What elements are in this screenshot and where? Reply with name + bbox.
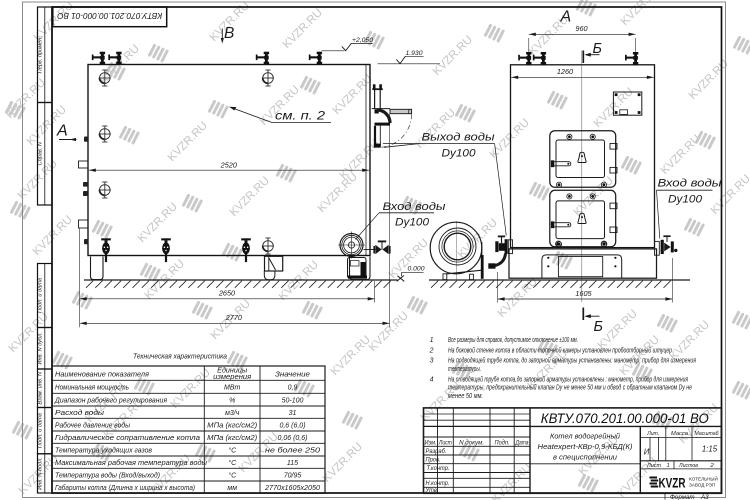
svg-text:не более 250: не более 250 <box>265 447 320 455</box>
svg-text:Расход воды: Расход воды <box>55 409 105 417</box>
svg-text:Б: Б <box>594 319 603 335</box>
svg-text:%: % <box>229 398 235 405</box>
svg-text:в специсполнении: в специсполнении <box>553 453 618 462</box>
svg-text:Вход воды: Вход воды <box>383 201 446 213</box>
svg-text:Разраб.: Разраб. <box>426 449 447 455</box>
svg-text:4: 4 <box>430 376 434 383</box>
svg-text:А: А <box>560 9 572 26</box>
svg-text:Масштаб: Масштаб <box>695 431 720 437</box>
svg-text:1:15: 1:15 <box>702 445 718 454</box>
svg-text:Значение: Значение <box>275 371 310 378</box>
svg-text:Номинальная мощность: Номинальная мощность <box>55 385 129 392</box>
svg-text:м3/ч: м3/ч <box>225 410 240 417</box>
svg-text:измерения: измерения <box>213 374 251 381</box>
svg-text:+2,050: +2,050 <box>352 37 373 44</box>
svg-text:70/95: 70/95 <box>284 473 302 480</box>
svg-text:115: 115 <box>287 460 298 467</box>
svg-text:1: 1 <box>430 337 434 344</box>
svg-text:Формат: Формат <box>670 494 695 500</box>
svg-text:Подп.: Подп. <box>495 440 510 446</box>
svg-text:Все размеры для справок, допус: Все размеры для справок, допустимое откл… <box>448 336 578 344</box>
svg-text:температуры.: температуры. <box>448 366 481 373</box>
svg-text:На отводящей трубе котла,до за: На отводящей трубе котла,до запорной арм… <box>448 375 688 383</box>
svg-text:Лист: Лист <box>438 440 452 446</box>
svg-text:МВт: МВт <box>224 385 241 392</box>
svg-text:KVZR.RU: KVZR.RU <box>321 441 365 485</box>
svg-text:Техническая характеристика: Техническая характеристика <box>133 352 227 361</box>
svg-text:KVZR.RU: KVZR.RU <box>619 0 663 28</box>
svg-text:Вход воды: Вход воды <box>658 178 722 190</box>
svg-text:2: 2 <box>429 347 434 354</box>
svg-text:Heatexpert-КВр-0,9-КБД(К): Heatexpert-КВр-0,9-КБД(К) <box>538 442 633 451</box>
svg-text:KVZR.RU: KVZR.RU <box>169 367 213 411</box>
svg-text:КВТУ.070.201.00.000-01 ВО: КВТУ.070.201.00.000-01 ВО <box>57 11 162 21</box>
svg-text:KVZR.RU: KVZR.RU <box>277 259 321 303</box>
svg-text:Листов: Листов <box>678 463 698 469</box>
svg-text:А3: А3 <box>700 494 709 500</box>
svg-text:Взам. инв. N: Взам. инв. N <box>38 371 44 405</box>
svg-text:0,6 (6,0): 0,6 (6,0) <box>279 423 305 430</box>
svg-text:1260: 1260 <box>557 67 573 76</box>
svg-text:KVZR.RU: KVZR.RU <box>490 462 534 500</box>
svg-text:Дата: Дата <box>515 440 529 446</box>
svg-text:Инв. N подл.: Инв. N подл. <box>38 457 44 490</box>
svg-text:МПа (кгс/см2): МПа (кгс/см2) <box>207 435 257 442</box>
svg-text:KVZR.RU: KVZR.RU <box>31 214 75 258</box>
svg-text:КОТЕЛЬНЫЙ: КОТЕЛЬНЫЙ <box>689 475 718 482</box>
svg-text:2: 2 <box>710 463 715 469</box>
svg-text:Лит.: Лит. <box>646 431 659 437</box>
svg-text:Гидравлическое сопративление к: Гидравлическое сопративление котла <box>55 434 200 442</box>
svg-text:0,9: 0,9 <box>288 385 298 392</box>
svg-text:Подп. и дата: Подп. и дата <box>38 413 44 448</box>
svg-text:И: И <box>644 448 650 457</box>
svg-text:KVZR.RU: KVZR.RU <box>367 310 411 354</box>
svg-text:Котел водогрейный: Котел водогрейный <box>550 432 621 441</box>
svg-text:Габариты котла (Длинна х ширин: Габариты котла (Длинна х ширина х высота… <box>55 484 195 492</box>
svg-text:3: 3 <box>430 358 434 365</box>
svg-text:Утв.: Утв. <box>425 488 439 494</box>
svg-text:Справ. N: Справ. N <box>38 141 44 165</box>
svg-text:KVZR: KVZR <box>659 476 686 491</box>
svg-text:50-100: 50-100 <box>282 398 304 405</box>
svg-text:°С: °С <box>228 459 237 467</box>
svg-text:Температура воды (Вход/выход): Температура воды (Вход/выход) <box>55 472 160 480</box>
svg-text:температуры, предохранительный: температуры, предохранительный клапан Dу… <box>448 384 692 392</box>
svg-text:0,06 (0,6): 0,06 (0,6) <box>278 435 308 442</box>
svg-text:KVZR.RU: KVZR.RU <box>228 175 272 219</box>
svg-text:А: А <box>56 123 68 140</box>
svg-text:1: 1 <box>667 463 670 469</box>
svg-text:Инв. N дубл.: Инв. N дубл. <box>38 332 44 364</box>
svg-text:На подводящей трубе котла, д: На подводящей трубе котла, до запорной а… <box>448 357 696 365</box>
svg-text:KVZR.RU: KVZR.RU <box>281 7 325 51</box>
svg-text:N докум.: N докум. <box>459 440 484 446</box>
svg-text:Н.контр.: Н.контр. <box>426 481 450 487</box>
svg-text:0.000: 0.000 <box>407 265 424 272</box>
svg-text:2770: 2770 <box>225 313 242 322</box>
svg-text:2770х1605х2050: 2770х1605х2050 <box>264 485 320 492</box>
svg-text:2650: 2650 <box>218 289 235 298</box>
svg-text:2520: 2520 <box>220 160 237 169</box>
svg-text:KVZR.RU: KVZR.RU <box>316 171 360 215</box>
svg-text:KVZR.RU: KVZR.RU <box>329 334 373 378</box>
svg-text:Dy100: Dy100 <box>395 217 430 229</box>
svg-text:KVZR.RU: KVZR.RU <box>136 201 180 245</box>
svg-text:°С: °С <box>228 447 237 455</box>
svg-text:мм: мм <box>227 485 237 492</box>
svg-text:KVZR.RU: KVZR.RU <box>7 311 51 355</box>
svg-text:Масса: Масса <box>671 431 688 437</box>
svg-text:Максимальная рабочая температу: Максимальная рабочая температура воды <box>55 459 208 467</box>
svg-text:Dy100: Dy100 <box>442 148 477 160</box>
svg-text:Диапазон рабочего регулировани: Диапазон рабочего регулирования <box>54 397 167 405</box>
svg-text:Dy100: Dy100 <box>668 194 703 206</box>
svg-text:менее 50 мм.: менее 50 мм. <box>448 393 483 400</box>
svg-text:Лист: Лист <box>646 463 661 469</box>
svg-text:Температура уходящих газов: Температура уходящих газов <box>55 447 152 455</box>
svg-text:На боковой стенке котла в обла: На боковой стенке котла в области топочн… <box>448 346 672 354</box>
svg-text:960: 960 <box>575 24 587 33</box>
svg-text:Т.контр.: Т.контр. <box>427 466 450 472</box>
svg-text:31: 31 <box>289 410 297 417</box>
svg-text:Перв. примен.: Перв. примен. <box>38 36 44 73</box>
svg-text:Пров.: Пров. <box>426 458 441 464</box>
svg-text:°С: °С <box>228 472 237 480</box>
svg-text:KVZR.RU: KVZR.RU <box>687 58 731 102</box>
svg-text:Изм.: Изм. <box>425 440 437 446</box>
svg-text:Подп. и дата: Подп. и дата <box>38 278 44 313</box>
svg-text:Рабочее давление воды: Рабочее давление воды <box>55 422 131 430</box>
svg-text:ЗАВОД РЭП: ЗАВОД РЭП <box>689 483 715 488</box>
svg-text:см. п. 2: см. п. 2 <box>275 111 326 123</box>
svg-text:KVZR.RU: KVZR.RU <box>166 120 210 164</box>
svg-text:Наименование показателя: Наименование показателя <box>55 371 149 378</box>
svg-text:Выход воды: Выход воды <box>422 132 495 144</box>
svg-text:КВТУ.070.201.00.000-01 ВО: КВТУ.070.201.00.000-01 ВО <box>541 411 710 426</box>
svg-text:KVZR.RU: KVZR.RU <box>431 34 475 78</box>
svg-text:KVZR.RU: KVZR.RU <box>387 237 431 281</box>
svg-text:В: В <box>224 25 234 42</box>
svg-text:KVZR.RU: KVZR.RU <box>331 73 375 117</box>
svg-text:МПа (кгс/см2): МПа (кгс/см2) <box>207 423 257 430</box>
svg-text:1605: 1605 <box>575 289 592 298</box>
svg-text:KVZR.RU: KVZR.RU <box>414 107 458 151</box>
